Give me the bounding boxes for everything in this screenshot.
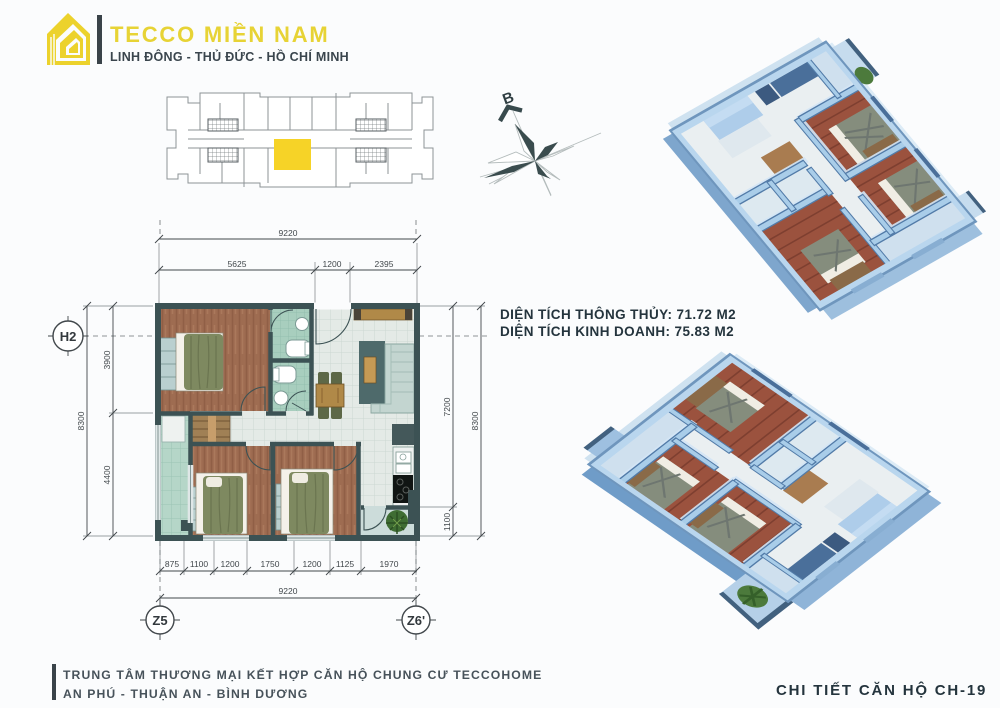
svg-text:1100: 1100 [442, 513, 452, 532]
svg-text:Z5: Z5 [152, 613, 167, 628]
svg-text:3900: 3900 [102, 350, 112, 369]
svg-text:9220: 9220 [279, 228, 298, 238]
svg-text:8300: 8300 [76, 411, 86, 430]
svg-text:1970: 1970 [380, 559, 399, 569]
svg-text:CHI TIẾT CĂN HỘ CH-19: CHI TIẾT CĂN HỘ CH-19 [776, 681, 987, 699]
svg-text:TECCO MIỀN NAM: TECCO MIỀN NAM [110, 22, 330, 47]
svg-text:8300: 8300 [470, 411, 480, 430]
svg-text:1750: 1750 [261, 559, 280, 569]
svg-text:1100: 1100 [190, 559, 209, 569]
svg-text:DIỆN TÍCH KINH DOANH: 75.83 M: DIỆN TÍCH KINH DOANH: 75.83 M2 [500, 324, 734, 339]
svg-text:LINH ĐÔNG - THỦ ĐỨC - HỒ CHÍ M: LINH ĐÔNG - THỦ ĐỨC - HỒ CHÍ MINH [110, 49, 349, 64]
svg-text:Z6': Z6' [407, 613, 425, 628]
svg-text:7200: 7200 [442, 397, 452, 416]
svg-text:1200: 1200 [221, 559, 240, 569]
svg-text:1200: 1200 [303, 559, 322, 569]
svg-text:2395: 2395 [375, 259, 394, 269]
svg-text:875: 875 [165, 559, 179, 569]
svg-text:9220: 9220 [279, 586, 298, 596]
svg-text:DIỆN TÍCH THÔNG THỦY: 71.72 M2: DIỆN TÍCH THÔNG THỦY: 71.72 M2 [500, 307, 736, 322]
svg-text:4400: 4400 [102, 465, 112, 484]
svg-text:5625: 5625 [228, 259, 247, 269]
svg-text:1125: 1125 [336, 559, 355, 569]
svg-text:AN PHÚ - THUẬN AN - BÌNH DƯƠNG: AN PHÚ - THUẬN AN - BÌNH DƯƠNG [63, 686, 308, 701]
svg-text:H2: H2 [60, 329, 77, 344]
svg-text:TRUNG TÂM THƯƠNG MẠI KẾT HỢP C: TRUNG TÂM THƯƠNG MẠI KẾT HỢP CĂN HỘ CHUN… [63, 667, 542, 682]
svg-text:1200: 1200 [323, 259, 342, 269]
